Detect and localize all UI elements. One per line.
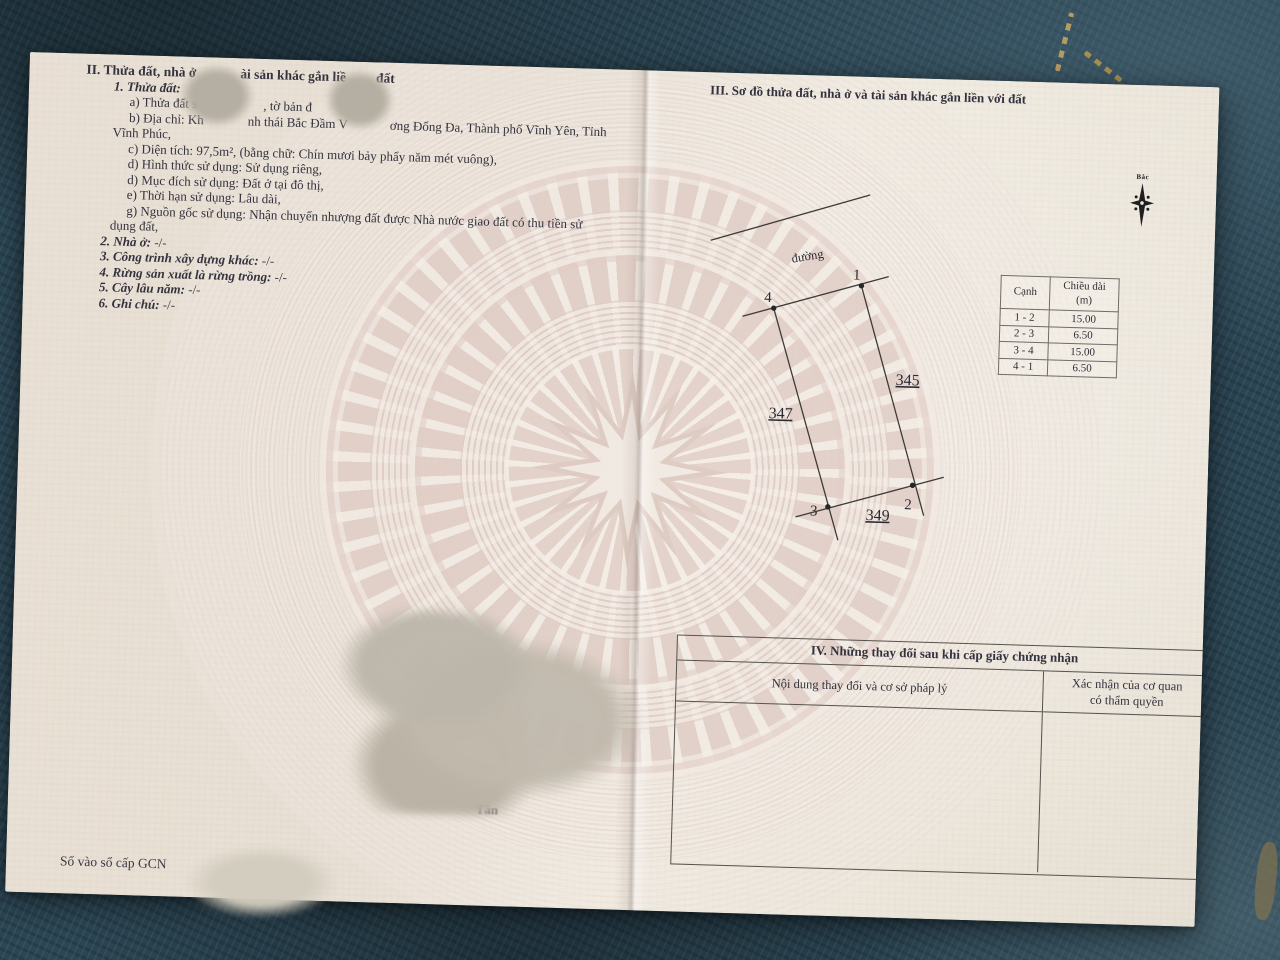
authority-confirm-header: Xác nhận của cơ quancó thẩm quyền xyxy=(1043,671,1211,716)
edge-table-header: Cạnh Chiều dài(m) xyxy=(1000,275,1119,311)
fabric-stitch xyxy=(1055,12,1074,71)
length-cell: 15.00 xyxy=(1049,310,1118,329)
fabric-object xyxy=(1252,841,1280,921)
edge-col-header: Cạnh xyxy=(1000,275,1050,309)
corner-label-2: 2 xyxy=(904,497,912,513)
authority-confirm-cell xyxy=(1038,712,1210,877)
edge-row: 4 - 16.50 xyxy=(998,358,1116,378)
edge-length-table: Cạnh Chiều dài(m) 1 - 215.00 2 - 36.50 3… xyxy=(998,275,1120,378)
length-cell: 6.50 xyxy=(1048,326,1117,345)
edge-cell: 1 - 2 xyxy=(1000,308,1049,326)
redaction-blob xyxy=(324,68,396,132)
section-4-body-row xyxy=(671,701,1210,877)
adjacent-parcel-345: 345 xyxy=(895,372,919,390)
photo-scene: II. Thửa đất, nhà ởài sản khác gắn liềđấ… xyxy=(0,0,1280,960)
parcel-diagram: 1 4 2 3 345 347 349 đường xyxy=(655,151,1017,561)
compass-star-icon xyxy=(1128,182,1155,229)
redaction-blob-stamp xyxy=(308,606,669,821)
edge-cell: 4 - 1 xyxy=(998,358,1047,376)
boundary-1-2 xyxy=(855,286,931,516)
length-cell: 6.50 xyxy=(1047,359,1116,378)
length-col-header: Chiều dài(m) xyxy=(1049,277,1119,312)
road-edge-line xyxy=(711,190,870,245)
adjacent-parcel-347: 347 xyxy=(768,405,792,423)
certificate-paper: II. Thửa đất, nhà ởài sản khác gắn liềđấ… xyxy=(5,52,1219,927)
edge-cell: 2 - 3 xyxy=(999,325,1048,343)
adjacent-parcel-349: 349 xyxy=(865,507,889,525)
redaction-blob-footer xyxy=(184,845,339,919)
gcn-register-number: Số vào sổ cấp GCN xyxy=(60,853,167,872)
fabric-stitch xyxy=(1083,50,1122,82)
road-label: đường xyxy=(791,247,826,266)
section-4-table: IV. Những thay đổi sau khi cấp giấy chứn… xyxy=(670,634,1213,880)
corner-label-3: 3 xyxy=(810,503,818,519)
redaction-blob xyxy=(178,62,256,128)
change-content-cell xyxy=(671,701,1043,872)
corner-label-4: 4 xyxy=(764,290,772,306)
compass-rose: Bắc xyxy=(1121,172,1163,233)
corner-label-1: 1 xyxy=(853,268,861,284)
length-cell: 15.00 xyxy=(1048,343,1117,362)
corner-point-4 xyxy=(771,305,777,311)
compass-north-label: Bắc xyxy=(1123,172,1163,181)
edge-cell: 3 - 4 xyxy=(999,341,1048,359)
boundary-4-3 xyxy=(767,308,845,540)
